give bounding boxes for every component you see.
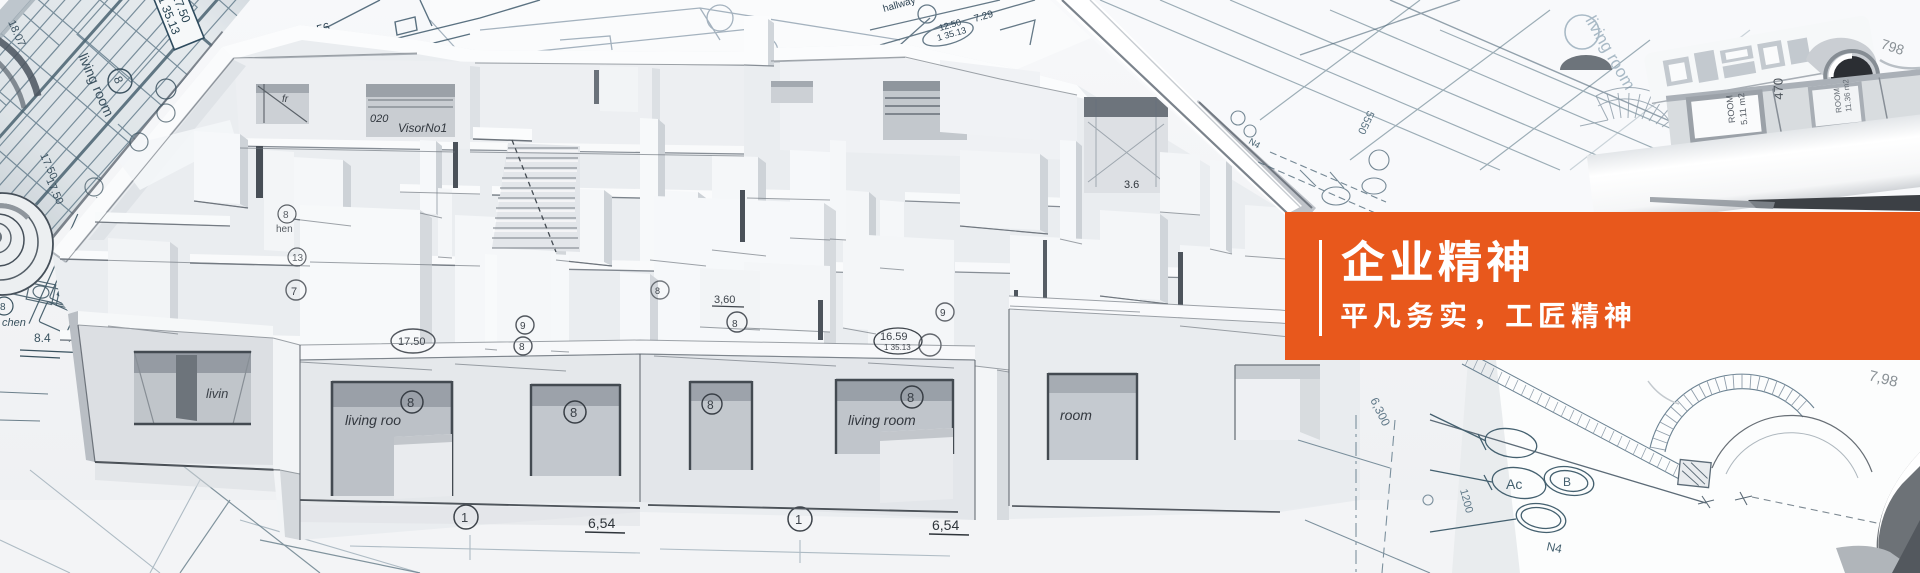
- svg-text:9: 9: [940, 308, 946, 319]
- svg-text:1: 1: [461, 510, 468, 525]
- svg-text:6,54: 6,54: [588, 515, 615, 531]
- svg-text:9: 9: [520, 321, 526, 332]
- svg-text:13: 13: [292, 253, 304, 264]
- svg-text:1: 1: [795, 512, 802, 527]
- svg-text:16.59: 16.59: [880, 331, 908, 343]
- svg-text:8: 8: [707, 398, 714, 412]
- svg-text:living room: living room: [848, 412, 916, 428]
- svg-text:020: 020: [370, 113, 389, 125]
- svg-text:Ac: Ac: [1506, 476, 1522, 492]
- svg-text:1 35.13: 1 35.13: [884, 343, 911, 352]
- svg-text:8: 8: [407, 395, 414, 410]
- svg-text:8: 8: [655, 286, 660, 296]
- svg-text:living roo: living roo: [345, 412, 401, 428]
- svg-text:8.4: 8.4: [34, 331, 51, 345]
- svg-text:3,60: 3,60: [714, 294, 735, 306]
- svg-text:8: 8: [732, 319, 738, 330]
- svg-text:3.6: 3.6: [1124, 179, 1139, 191]
- svg-text:8: 8: [0, 302, 6, 313]
- svg-text:6,54: 6,54: [932, 517, 959, 533]
- svg-text:VisorNo1: VisorNo1: [398, 121, 447, 135]
- svg-text:chen: chen: [2, 317, 26, 329]
- svg-text:hen: hen: [276, 224, 293, 235]
- svg-text:room: room: [1060, 407, 1092, 423]
- svg-text:7: 7: [291, 286, 297, 298]
- svg-text:B: B: [1563, 475, 1571, 489]
- svg-text:8: 8: [283, 210, 289, 221]
- svg-text:8: 8: [907, 390, 914, 405]
- svg-text:fr: fr: [282, 94, 289, 105]
- svg-text:8: 8: [519, 342, 525, 353]
- svg-text:17.50: 17.50: [398, 336, 426, 348]
- svg-text:8: 8: [570, 405, 577, 420]
- svg-text:livin: livin: [206, 386, 228, 401]
